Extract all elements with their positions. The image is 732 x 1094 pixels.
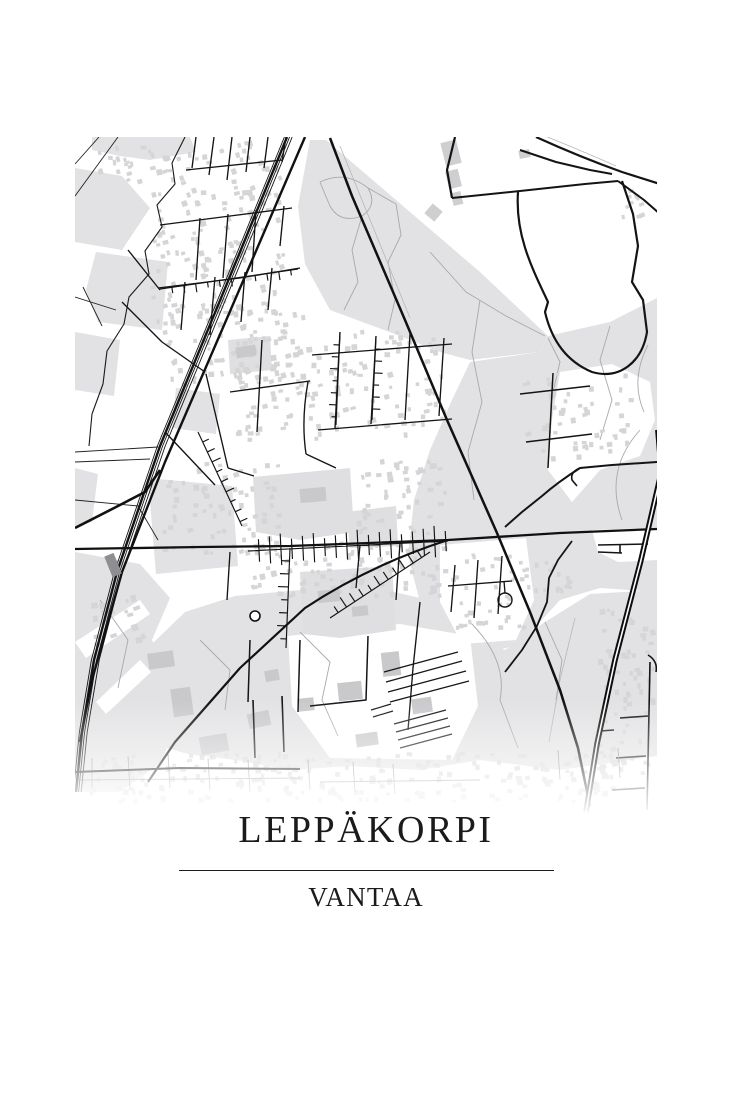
map-poster: LEPPÄKORPI VANTAA	[0, 0, 732, 1094]
poster-subtitle: VANTAA	[0, 881, 732, 913]
poster-title: LEPPÄKORPI	[0, 808, 732, 852]
map-canvas	[75, 137, 657, 837]
title-block: LEPPÄKORPI	[0, 808, 732, 852]
title-divider	[179, 870, 554, 871]
